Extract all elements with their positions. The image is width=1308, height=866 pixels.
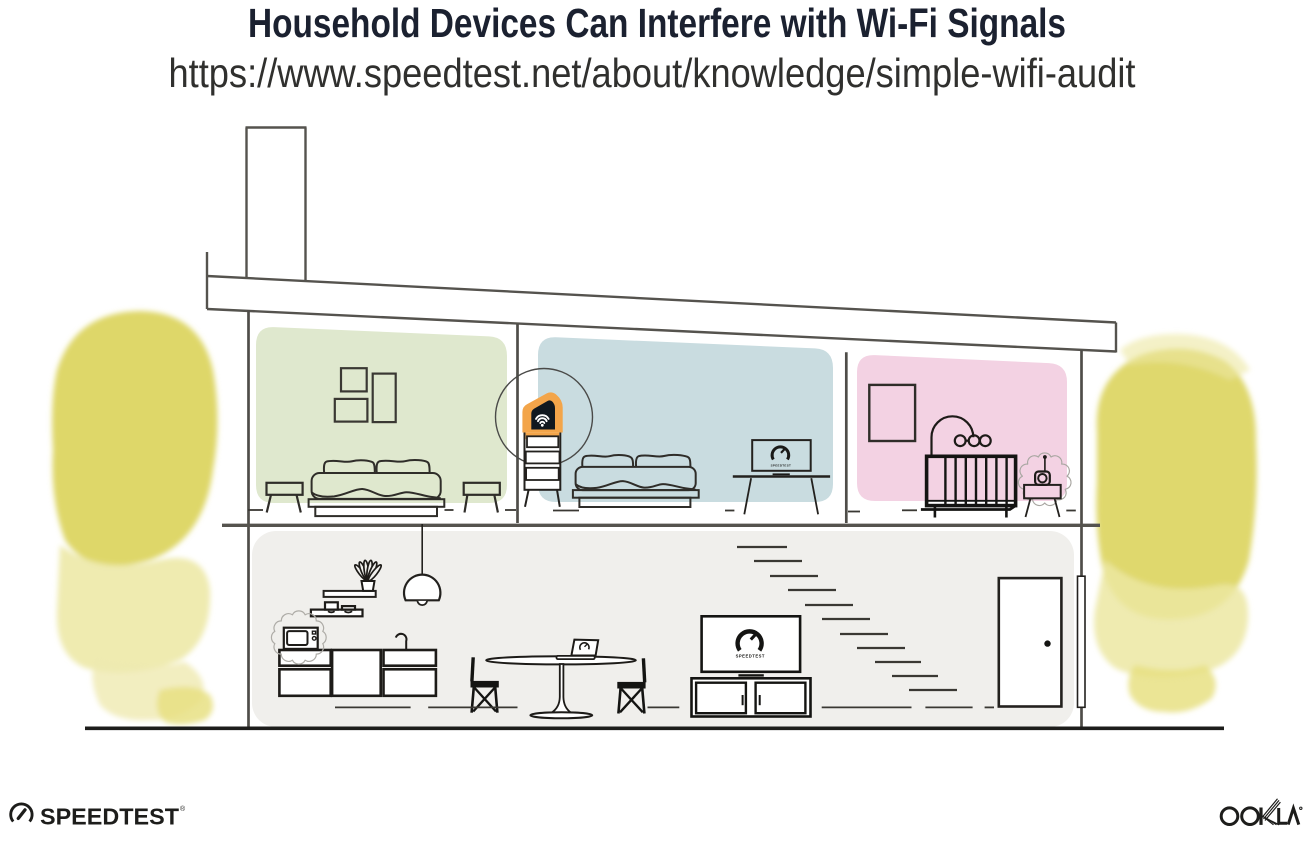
svg-text:®: ® — [180, 805, 186, 813]
svg-text:SPEEDTEST: SPEEDTEST — [40, 804, 179, 830]
svg-text:https://www.speedtest.net/abou: https://www.speedtest.net/about/knowledg… — [169, 50, 1137, 96]
svg-text:Household Devices Can Interfer: Household Devices Can Interfere with Wi-… — [248, 0, 1066, 46]
svg-text:SPEEDTEST: SPEEDTEST — [771, 463, 792, 467]
svg-text:SPEEDTEST: SPEEDTEST — [736, 654, 765, 659]
